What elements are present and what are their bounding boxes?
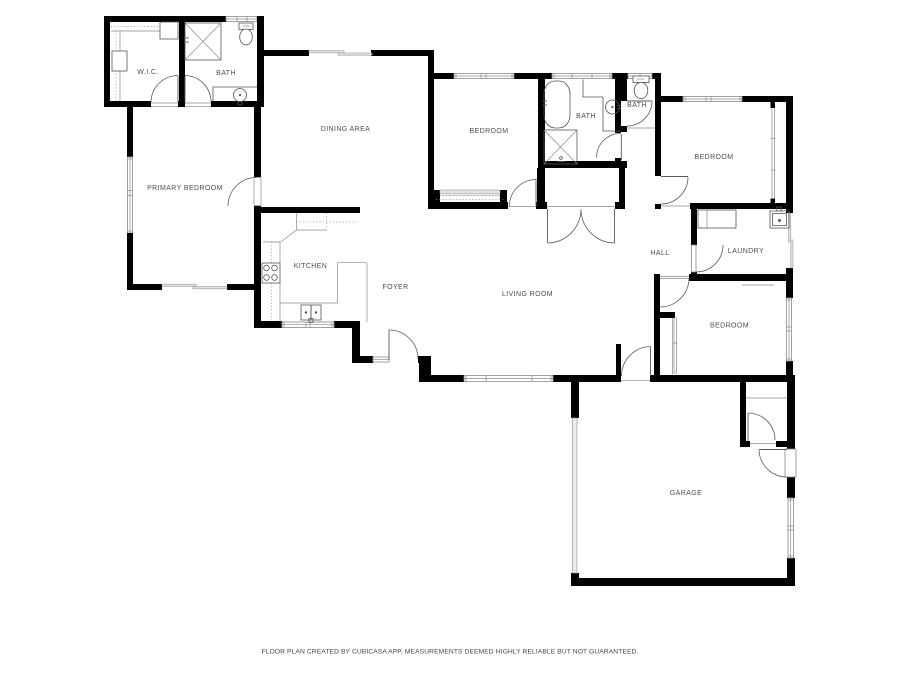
svg-text:FLOOR PLAN CREATED BY CUBICASA: FLOOR PLAN CREATED BY CUBICASA APP. MEAS… [262, 649, 639, 656]
svg-text:HALL: HALL [650, 250, 669, 257]
svg-text:LAUNDRY: LAUNDRY [728, 248, 764, 255]
svg-text:BEDROOM: BEDROOM [710, 323, 749, 330]
svg-text:BATH: BATH [576, 113, 596, 120]
svg-text:PRIMARY BEDROOM: PRIMARY BEDROOM [147, 185, 223, 192]
svg-text:GARAGE: GARAGE [670, 490, 702, 497]
svg-text:W.I.C.: W.I.C. [137, 69, 158, 76]
svg-text:DINING AREA: DINING AREA [321, 126, 371, 133]
svg-text:BEDROOM: BEDROOM [470, 128, 509, 135]
svg-text:BATH: BATH [627, 102, 647, 109]
svg-text:KITCHEN: KITCHEN [294, 263, 328, 270]
svg-text:BEDROOM: BEDROOM [695, 154, 734, 161]
svg-text:BATH: BATH [216, 70, 236, 77]
svg-text:LIVING ROOM: LIVING ROOM [502, 291, 553, 298]
svg-text:FOYER: FOYER [382, 284, 408, 291]
